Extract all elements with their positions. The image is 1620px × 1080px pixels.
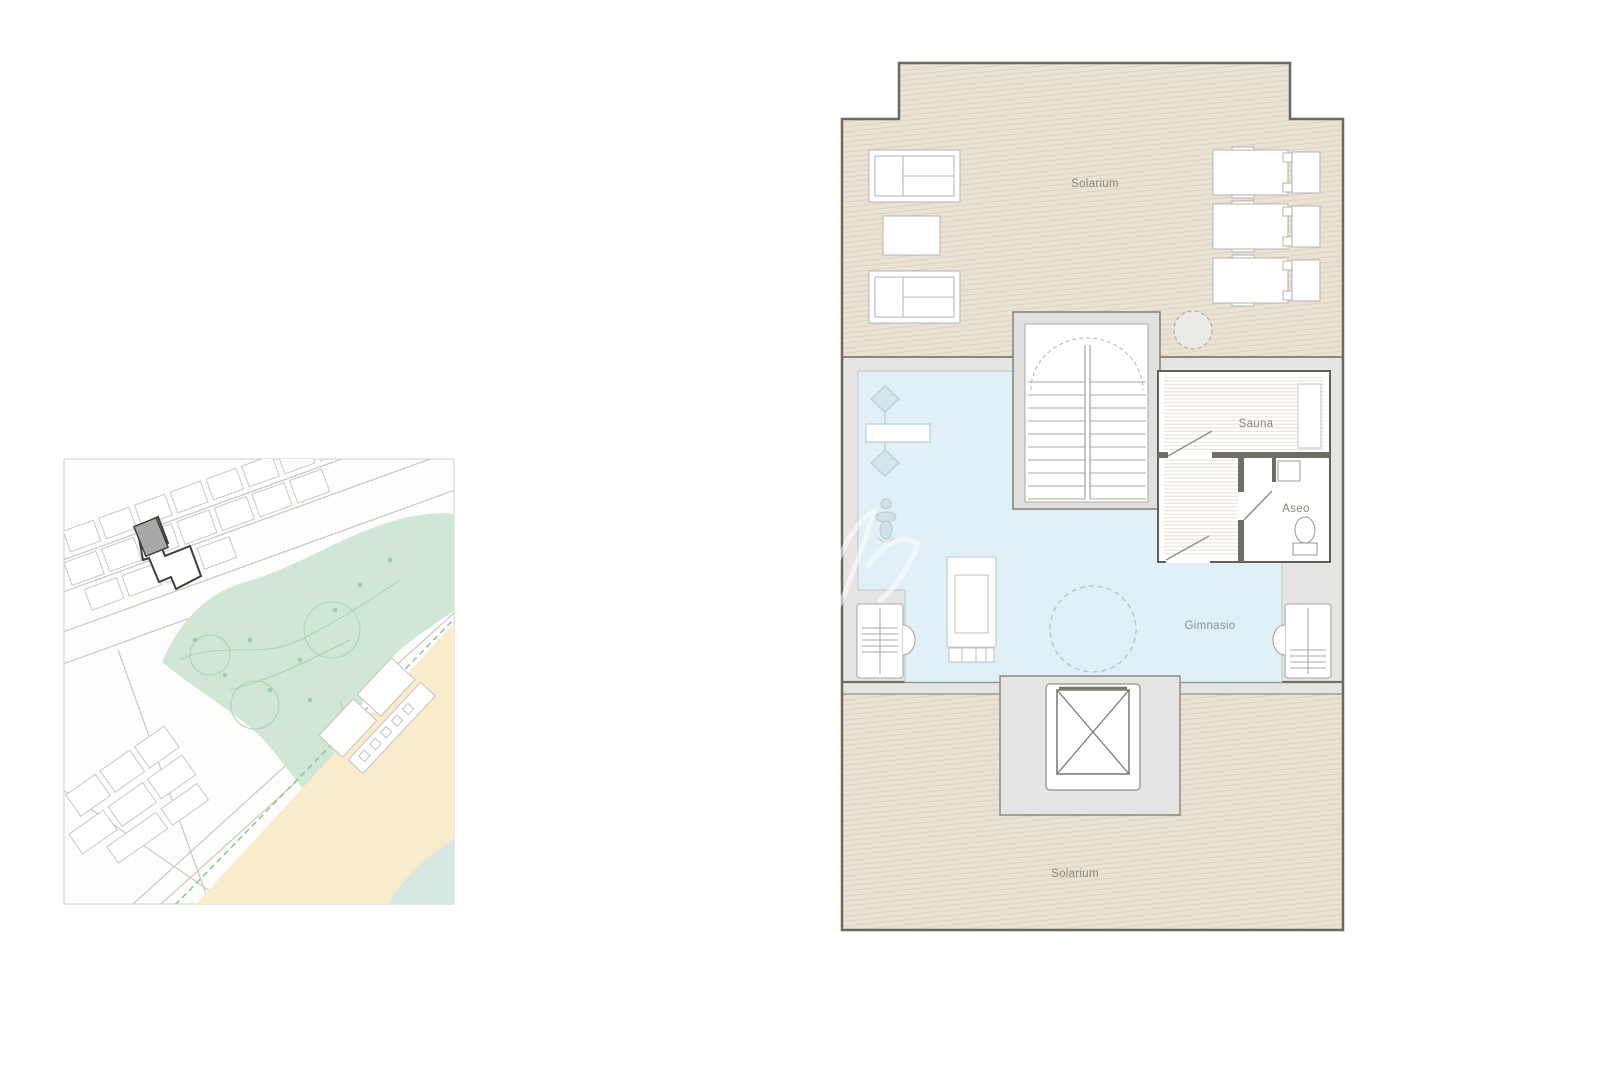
room-sauna: Sauna [1164, 377, 1324, 452]
gimnasio-label: Gimnasio [1185, 620, 1236, 632]
aseo-label: Aseo [1282, 503, 1309, 515]
toilet-icon [1293, 517, 1317, 555]
sauna-label: Sauna [1239, 418, 1274, 430]
solarium-bottom-label: Solarium [1051, 868, 1099, 880]
side-table-icon [883, 216, 940, 255]
site-map [63, 458, 455, 905]
sun-lounger-icon [869, 150, 960, 202]
sauna-aseo-block: Sauna Aseo [1158, 371, 1330, 563]
floor-plan: Solarium Solarium Gimnasio [805, 50, 1355, 940]
sun-lounger-icon [1213, 201, 1320, 252]
treadmill-icon [947, 557, 996, 662]
elevator-icon [1000, 676, 1180, 815]
sink-icon [1278, 461, 1300, 481]
stairs-icon [1013, 312, 1160, 509]
sun-lounger-icon [869, 271, 960, 323]
floorplan-page: Solarium Solarium Gimnasio [0, 0, 1620, 1080]
spa-circle-icon [1174, 311, 1212, 349]
sauna-bench-icon [1298, 384, 1321, 448]
sun-lounger-icon [1213, 147, 1320, 198]
sun-lounger-icon [1213, 255, 1320, 306]
solarium-top-label: Solarium [1071, 178, 1119, 190]
